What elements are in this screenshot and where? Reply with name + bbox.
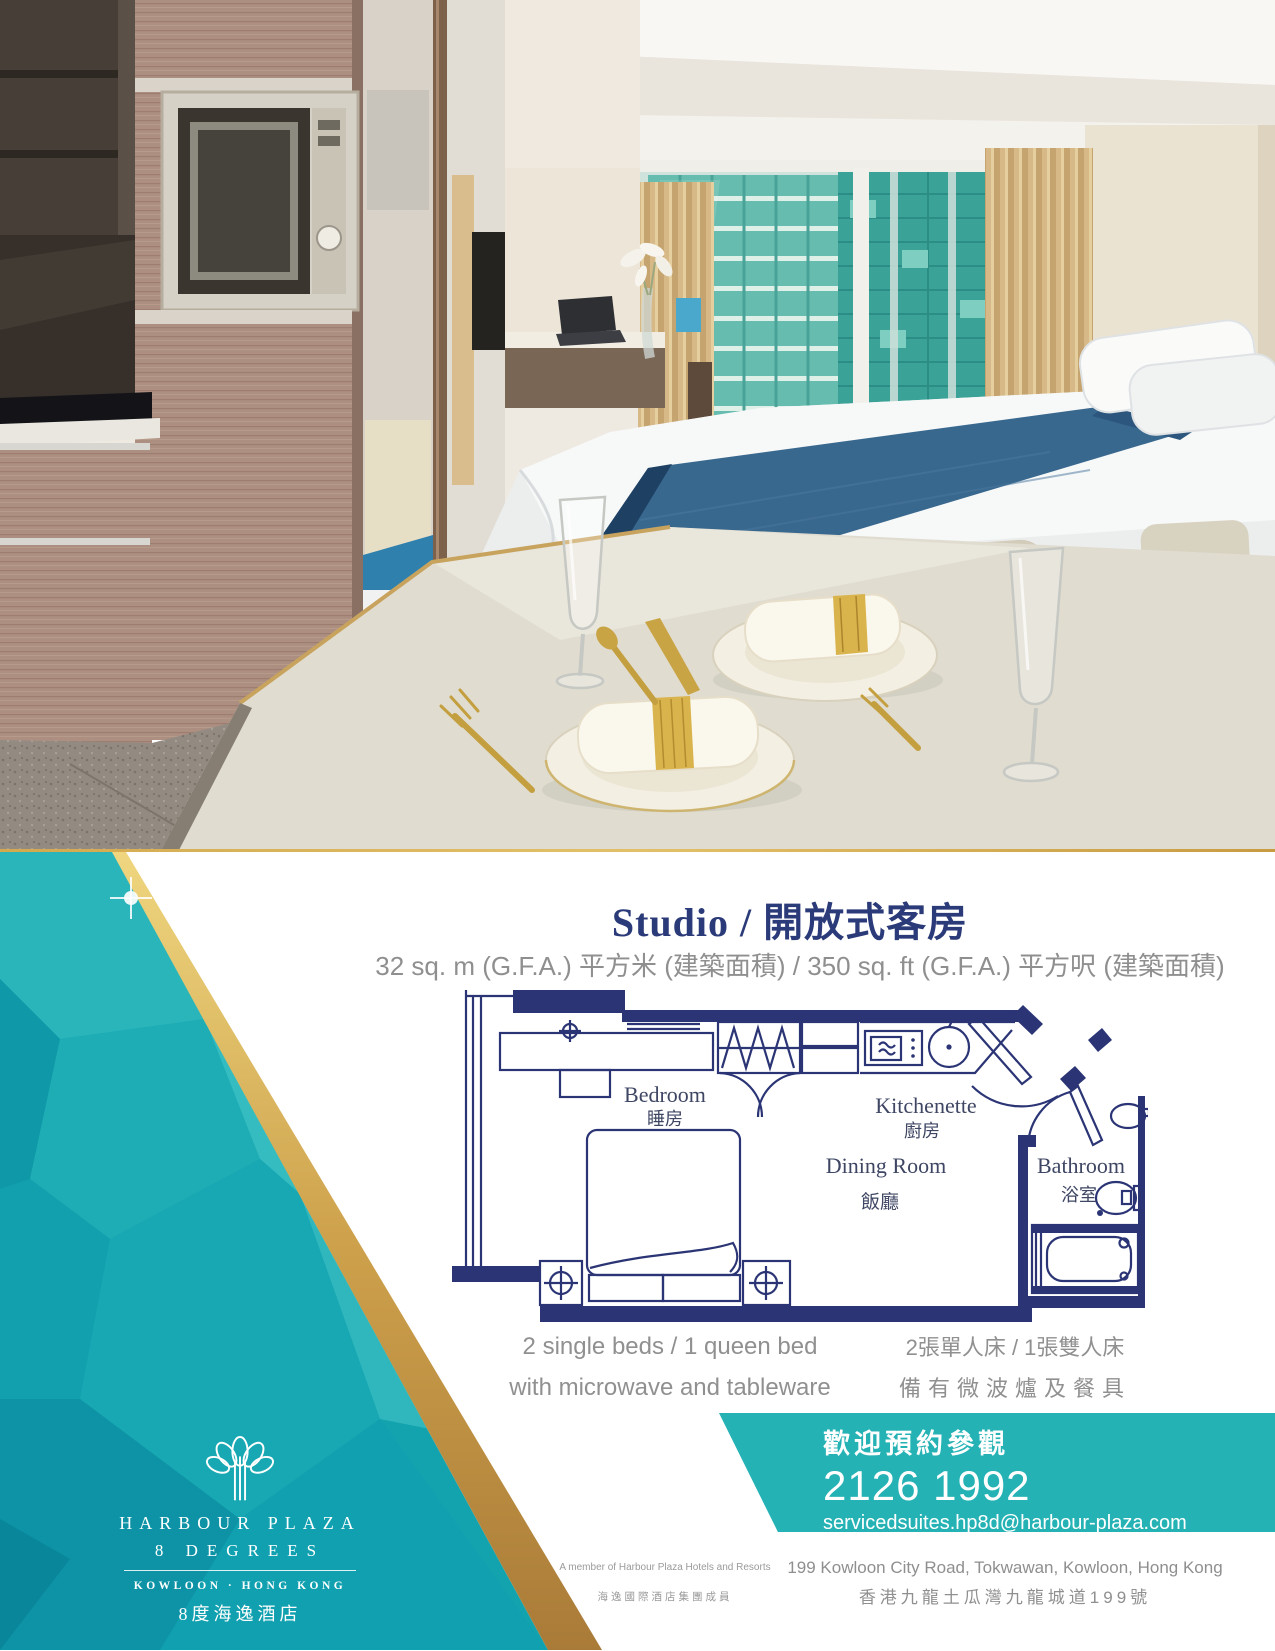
bathroom-label-zh: 浴室 bbox=[1061, 1185, 1097, 1205]
address-block: 199 Kowloon City Road, Tokwawan, Kowloon… bbox=[735, 1558, 1275, 1608]
logo-location: KOWLOON · HONG KONG bbox=[70, 1580, 410, 1592]
contact-phone: 2126 1992 bbox=[823, 1462, 1187, 1510]
bathroom-label: Bathroom bbox=[1037, 1153, 1125, 1178]
room-photo-graphic bbox=[0, 0, 1275, 852]
feature-microwave-zh: 備有微波爐及餐具 bbox=[850, 1368, 1180, 1409]
floorplan: Bedroom 睡房 Kitchenette 廚房 Dining Room 飯廳… bbox=[428, 988, 1148, 1325]
logo-name-line1: HARBOUR PLAZA bbox=[70, 1513, 410, 1534]
address-en: 199 Kowloon City Road, Tokwawan, Kowloon… bbox=[735, 1558, 1275, 1578]
laptop bbox=[558, 296, 616, 335]
dining-label-zh: 飯廳 bbox=[861, 1191, 899, 1213]
page-subtitle: 32 sq. m (G.F.A.) 平方米 (建築面積) / 350 sq. f… bbox=[325, 946, 1275, 983]
feature-beds: 2 single beds / 1 queen bed bbox=[495, 1326, 845, 1367]
kitchenette-label-zh: 廚房 bbox=[904, 1120, 940, 1141]
kitchenette-label: Kitchenette bbox=[875, 1093, 976, 1118]
lotus-logo-icon bbox=[185, 1426, 295, 1502]
brochure-card bbox=[676, 298, 701, 332]
contact-email: servicedsuites.hp8d@harbour-plaza.com bbox=[823, 1512, 1187, 1535]
brochure-page: Studio / 開放式客房 32 sq. m (G.F.A.) 平方米 (建築… bbox=[0, 0, 1275, 1651]
bedroom-label-zh: 睡房 bbox=[647, 1109, 683, 1129]
features-english: 2 single beds / 1 queen bed with microwa… bbox=[495, 1326, 845, 1408]
logo-name-line2: 8 DEGREES bbox=[70, 1541, 410, 1561]
features-chinese: 2張單人床 / 1張雙人床 備有微波爐及餐具 bbox=[850, 1327, 1180, 1409]
microwave bbox=[162, 92, 358, 310]
contact-heading: 歡迎預約參觀 bbox=[823, 1422, 1187, 1461]
contact-box: 歡迎預約參觀 2126 1992 servicedsuites.hp8d@har… bbox=[719, 1413, 1275, 1532]
room-photo bbox=[0, 0, 1275, 852]
feature-microwave: with microwave and tableware bbox=[495, 1367, 845, 1408]
logo-divider bbox=[124, 1570, 356, 1571]
logo-name-chinese: 8度海逸酒店 bbox=[70, 1600, 410, 1626]
floorplan-lines bbox=[466, 990, 1148, 1305]
hotel-logo: HARBOUR PLAZA 8 DEGREES KOWLOON · HONG K… bbox=[70, 1426, 410, 1626]
address-zh: 香港九龍土瓜灣九龍城道199號 bbox=[735, 1583, 1275, 1608]
dining-label: Dining Room bbox=[826, 1153, 946, 1178]
feature-beds-zh: 2張單人床 / 1張雙人床 bbox=[850, 1327, 1180, 1368]
page-title: Studio / 開放式客房 bbox=[300, 890, 1275, 948]
bedroom-label: Bedroom bbox=[624, 1082, 706, 1107]
